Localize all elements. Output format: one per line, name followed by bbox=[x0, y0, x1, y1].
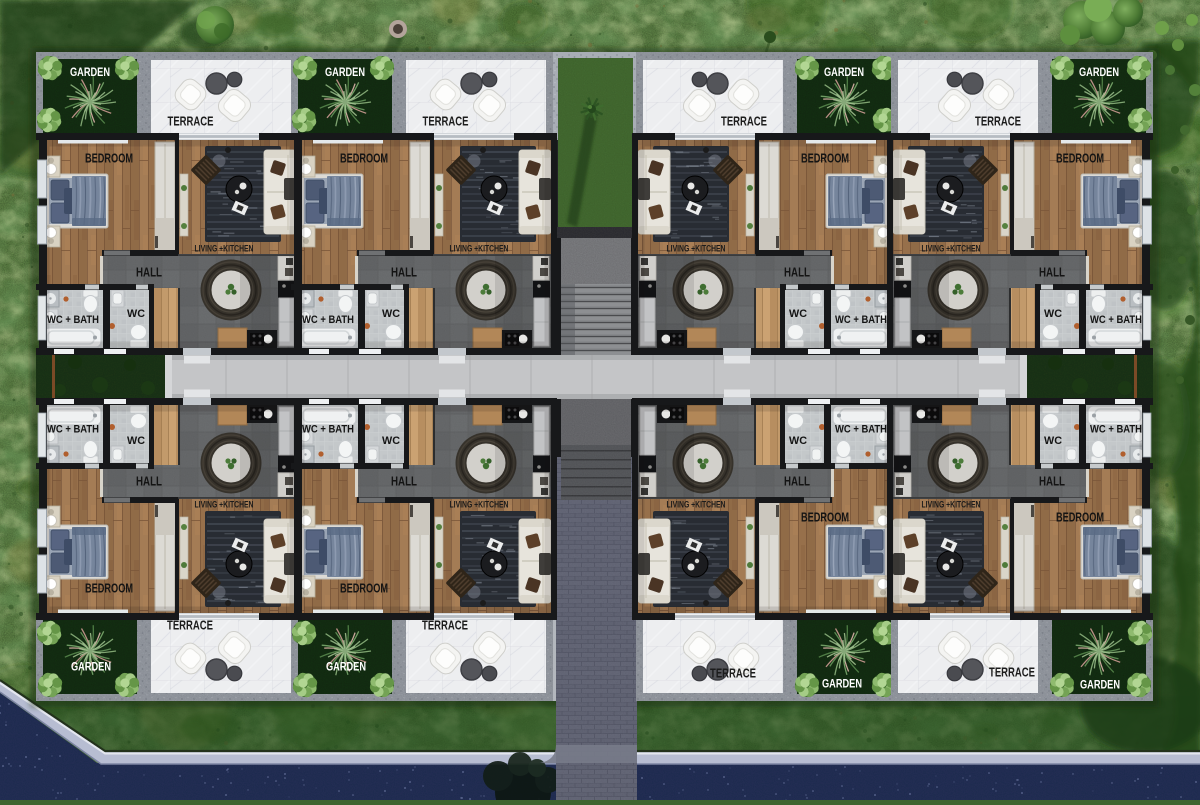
svg-text:BEDROOM: BEDROOM bbox=[340, 582, 388, 596]
svg-text:WC + BATH: WC + BATH bbox=[1090, 424, 1142, 436]
svg-text:TERRACE: TERRACE bbox=[989, 665, 1035, 680]
svg-text:HALL: HALL bbox=[391, 475, 417, 489]
svg-text:TERRACE: TERRACE bbox=[721, 114, 767, 129]
svg-text:WC: WC bbox=[127, 435, 145, 447]
svg-text:TERRACE: TERRACE bbox=[168, 114, 214, 129]
svg-text:HALL: HALL bbox=[391, 266, 417, 280]
svg-text:LIVING +KITCHEN: LIVING +KITCHEN bbox=[450, 244, 509, 254]
svg-text:GARDEN: GARDEN bbox=[1080, 678, 1120, 692]
svg-text:WC + BATH: WC + BATH bbox=[302, 314, 354, 326]
svg-text:HALL: HALL bbox=[136, 266, 162, 280]
svg-text:WC + BATH: WC + BATH bbox=[302, 424, 354, 436]
svg-text:LIVING +KITCHEN: LIVING +KITCHEN bbox=[667, 500, 726, 510]
svg-text:GARDEN: GARDEN bbox=[71, 660, 111, 674]
svg-text:GARDEN: GARDEN bbox=[326, 660, 366, 674]
svg-text:LIVING +KITCHEN: LIVING +KITCHEN bbox=[922, 500, 981, 510]
svg-text:BEDROOM: BEDROOM bbox=[85, 582, 133, 596]
svg-text:WC + BATH: WC + BATH bbox=[835, 314, 887, 326]
svg-text:WC: WC bbox=[1044, 435, 1062, 447]
svg-text:WC: WC bbox=[382, 435, 400, 447]
svg-text:HALL: HALL bbox=[784, 475, 810, 489]
svg-text:WC: WC bbox=[789, 435, 807, 447]
svg-text:WC: WC bbox=[382, 308, 400, 320]
svg-text:BEDROOM: BEDROOM bbox=[85, 152, 133, 166]
svg-text:BEDROOM: BEDROOM bbox=[1056, 511, 1104, 525]
svg-text:BEDROOM: BEDROOM bbox=[801, 152, 849, 166]
svg-text:WC + BATH: WC + BATH bbox=[47, 424, 99, 436]
svg-text:TERRACE: TERRACE bbox=[710, 666, 756, 681]
svg-text:LIVING +KITCHEN: LIVING +KITCHEN bbox=[195, 244, 254, 254]
svg-text:TERRACE: TERRACE bbox=[423, 114, 469, 129]
svg-text:GARDEN: GARDEN bbox=[70, 65, 110, 79]
svg-text:BEDROOM: BEDROOM bbox=[1056, 152, 1104, 166]
svg-text:LIVING +KITCHEN: LIVING +KITCHEN bbox=[195, 500, 254, 510]
svg-text:WC + BATH: WC + BATH bbox=[47, 314, 99, 326]
svg-text:GARDEN: GARDEN bbox=[1079, 65, 1119, 79]
svg-text:HALL: HALL bbox=[784, 266, 810, 280]
svg-text:LIVING +KITCHEN: LIVING +KITCHEN bbox=[667, 244, 726, 254]
svg-text:WC: WC bbox=[789, 308, 807, 320]
svg-text:GARDEN: GARDEN bbox=[822, 677, 862, 691]
svg-text:WC: WC bbox=[1044, 308, 1062, 320]
svg-text:WC + BATH: WC + BATH bbox=[1090, 314, 1142, 326]
svg-text:HALL: HALL bbox=[1039, 266, 1065, 280]
svg-text:LIVING +KITCHEN: LIVING +KITCHEN bbox=[450, 500, 509, 510]
svg-text:GARDEN: GARDEN bbox=[325, 65, 365, 79]
svg-text:HALL: HALL bbox=[1039, 475, 1065, 489]
svg-text:HALL: HALL bbox=[136, 475, 162, 489]
svg-text:LIVING +KITCHEN: LIVING +KITCHEN bbox=[922, 244, 981, 254]
svg-text:BEDROOM: BEDROOM bbox=[340, 152, 388, 166]
svg-text:TERRACE: TERRACE bbox=[975, 114, 1021, 129]
svg-text:GARDEN: GARDEN bbox=[824, 65, 864, 79]
svg-text:BEDROOM: BEDROOM bbox=[801, 511, 849, 525]
svg-text:WC: WC bbox=[127, 308, 145, 320]
svg-text:WC + BATH: WC + BATH bbox=[835, 424, 887, 436]
